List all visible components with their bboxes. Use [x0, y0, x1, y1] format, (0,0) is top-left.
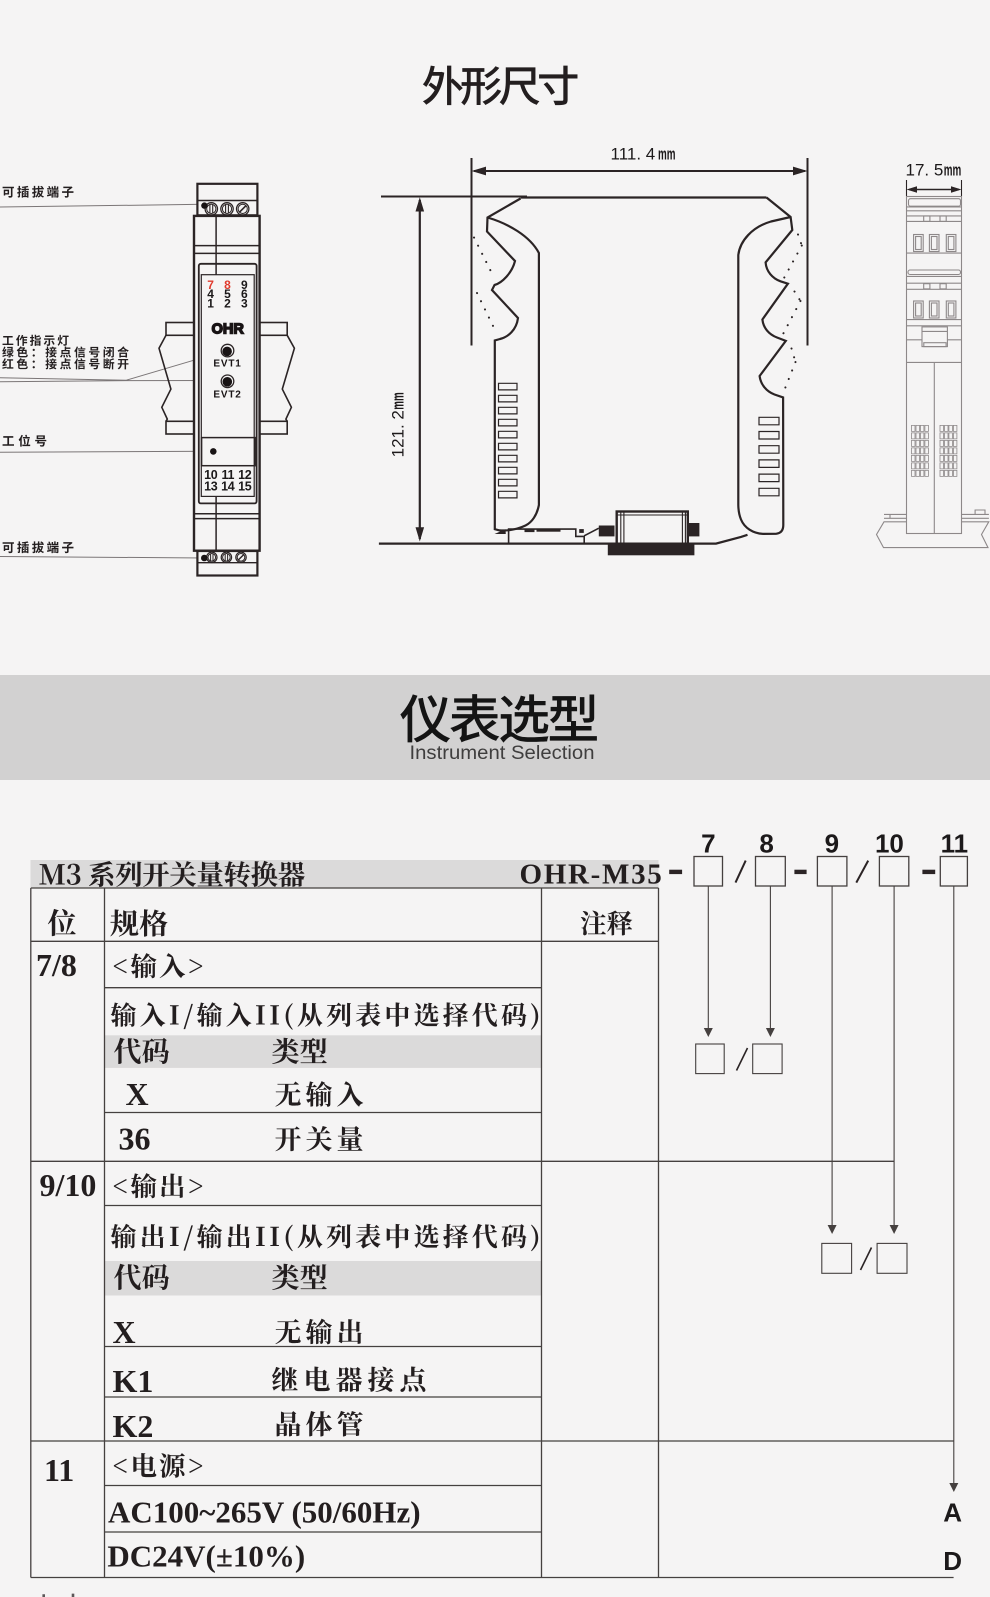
svg-text:X: X [126, 1076, 149, 1112]
svg-text:7/8: 7/8 [36, 947, 77, 983]
svg-text:11: 11 [941, 828, 969, 858]
svg-text:mm: mm [388, 392, 408, 410]
svg-text:D: D [943, 1546, 962, 1576]
svg-text:A: A [943, 1498, 962, 1528]
svg-text:14: 14 [221, 479, 235, 493]
svg-text:EVT2: EVT2 [213, 390, 241, 401]
svg-text:K2: K2 [113, 1408, 154, 1444]
svg-text:DC24V(±10%): DC24V(±10%) [107, 1539, 305, 1574]
svg-text:EVT1: EVT1 [213, 358, 241, 369]
svg-text:7: 7 [701, 828, 715, 858]
svg-text:K1: K1 [113, 1363, 154, 1399]
svg-text:mm: mm [658, 144, 676, 164]
svg-text:13: 13 [204, 479, 218, 493]
svg-text:AC100~265V (50/60Hz): AC100~265V (50/60Hz) [108, 1495, 421, 1530]
svg-text:OHR-M35: OHR-M35 [520, 859, 664, 891]
svg-text:15: 15 [238, 479, 252, 493]
svg-text:11: 11 [44, 1452, 74, 1488]
svg-text:36: 36 [119, 1121, 151, 1157]
svg-text:2: 2 [224, 296, 231, 310]
svg-text:3: 3 [241, 296, 248, 310]
svg-text:121. 2: 121. 2 [389, 410, 408, 457]
svg-text:mm: mm [944, 159, 962, 179]
svg-text:9/10: 9/10 [40, 1167, 97, 1203]
svg-text:8: 8 [759, 828, 773, 858]
svg-text:1: 1 [207, 296, 214, 310]
svg-text:111. 4: 111. 4 [611, 145, 656, 164]
svg-text:OHR: OHR [212, 320, 244, 337]
svg-text:X: X [113, 1314, 136, 1350]
svg-text:10: 10 [875, 828, 904, 858]
svg-text:Instrument Selection: Instrument Selection [410, 742, 595, 764]
svg-text:9: 9 [825, 828, 839, 858]
svg-text:17. 5: 17. 5 [906, 160, 944, 179]
